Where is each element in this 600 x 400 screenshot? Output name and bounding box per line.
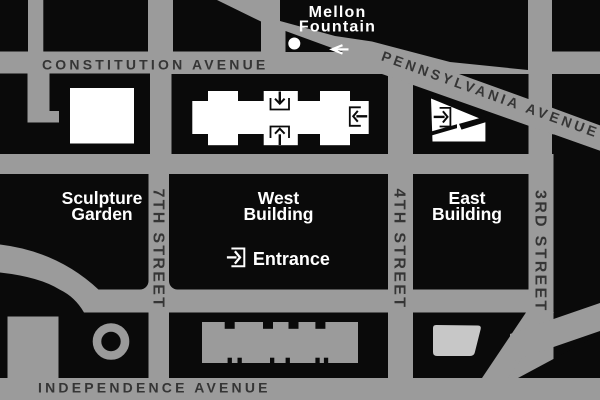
svg-text:Entrance: Entrance (253, 249, 330, 269)
svg-text:Building: Building (244, 204, 314, 224)
svg-text:3RD STREET: 3RD STREET (532, 190, 549, 313)
svg-text:4TH STREET: 4TH STREET (391, 189, 408, 310)
svg-text:Garden: Garden (71, 204, 132, 224)
svg-text:7TH STREET: 7TH STREET (150, 189, 167, 310)
svg-text:INDEPENDENCE AVENUE: INDEPENDENCE AVENUE (38, 380, 271, 396)
svg-text:CONSTITUTION AVENUE: CONSTITUTION AVENUE (42, 57, 268, 73)
svg-text:Fountain: Fountain (299, 19, 376, 36)
svg-text:Building: Building (432, 204, 502, 224)
